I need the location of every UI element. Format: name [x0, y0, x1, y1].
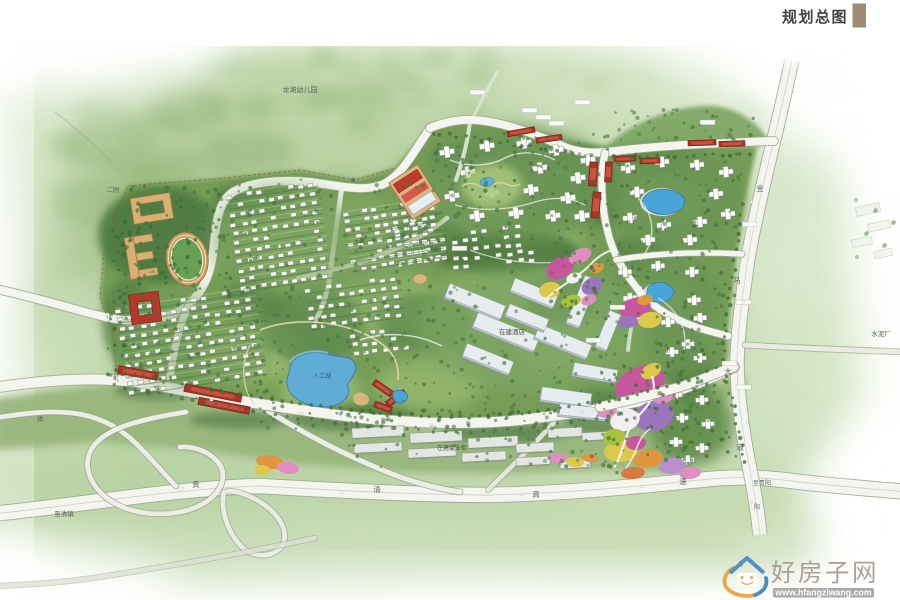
svg-text:至清镇: 至清镇: [54, 509, 74, 518]
svg-text:马: 马: [733, 276, 741, 285]
svg-text:www.hfangziwang.com: www.hfangziwang.com: [774, 588, 872, 598]
svg-text:道: 道: [736, 442, 744, 452]
svg-text:在建商业街: 在建商业街: [437, 444, 467, 452]
svg-text:阳: 阳: [754, 503, 760, 511]
svg-text:高: 高: [532, 489, 540, 499]
svg-text:贵: 贵: [192, 479, 200, 489]
svg-text:至贵阳: 至贵阳: [753, 479, 771, 487]
svg-text:二附: 二附: [107, 185, 121, 194]
svg-text:清: 清: [373, 484, 381, 494]
svg-text:规划总图: 规划总图: [782, 8, 848, 26]
svg-text:大: 大: [724, 366, 732, 376]
svg-text:龙滩幼儿园: 龙滩幼儿园: [283, 85, 318, 94]
svg-text:在建酒店: 在建酒店: [499, 327, 526, 336]
svg-text:人工湖: 人工湖: [313, 372, 331, 380]
svg-text:速: 速: [679, 477, 687, 486]
svg-text:水泥厂: 水泥厂: [871, 329, 891, 338]
svg-text:好房子网: 好房子网: [771, 559, 879, 587]
svg-text:镇: 镇: [37, 415, 43, 423]
svg-text:金: 金: [756, 183, 764, 193]
